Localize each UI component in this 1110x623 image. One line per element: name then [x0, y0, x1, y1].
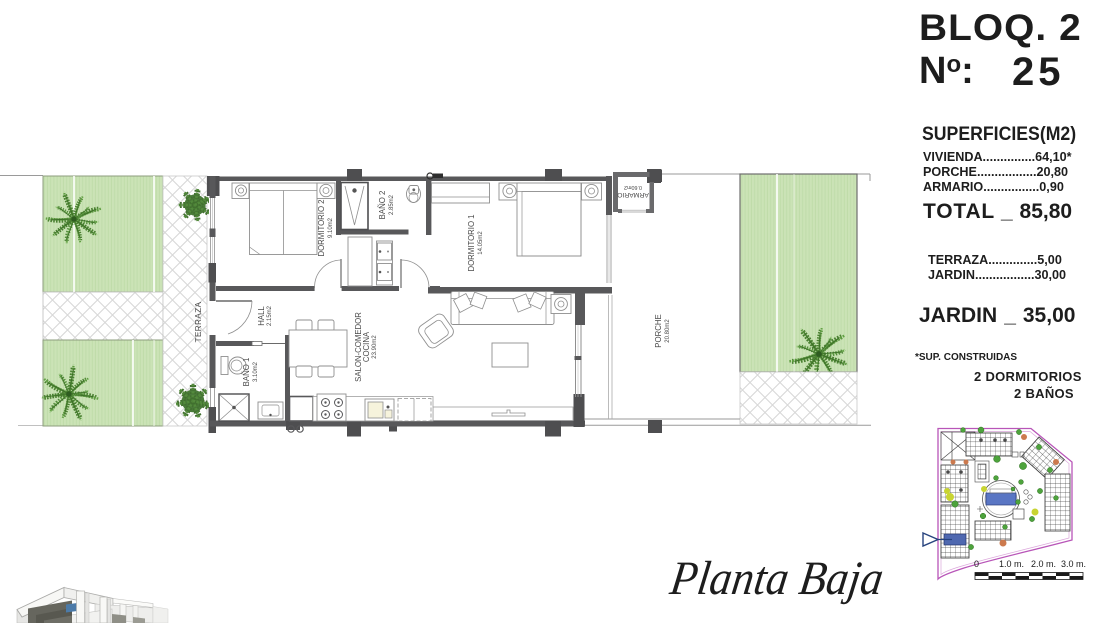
- svg-text:9.10m2: 9.10m2: [328, 217, 334, 238]
- svg-text:23.90m2: 23.90m2: [372, 335, 378, 359]
- svg-text:TERRAZA: TERRAZA: [194, 301, 203, 342]
- svg-text:HALL: HALL: [257, 306, 266, 326]
- svg-text:2.15m2: 2.15m2: [267, 305, 273, 326]
- svg-text:2.0 m.: 2.0 m.: [1031, 559, 1056, 569]
- svg-text:20.80m2: 20.80m2: [665, 319, 671, 343]
- svg-text:PORCHE: PORCHE: [654, 314, 663, 347]
- svg-text:1.0 m.: 1.0 m.: [999, 559, 1024, 569]
- svg-text:COCINA: COCINA: [362, 331, 371, 362]
- svg-text:ARMARIO: ARMARIO: [617, 191, 649, 198]
- svg-text:2.85m2: 2.85m2: [389, 194, 395, 215]
- svg-text:0: 0: [974, 559, 979, 569]
- svg-text:3.10m2: 3.10m2: [253, 361, 259, 382]
- svg-text:0.60m2: 0.60m2: [624, 184, 642, 190]
- svg-text:14.05m2: 14.05m2: [478, 231, 484, 255]
- svg-text:BAÑO 1: BAÑO 1: [242, 358, 251, 387]
- svg-text:BAÑO 2: BAÑO 2: [378, 191, 387, 220]
- svg-text:3.0 m.: 3.0 m.: [1061, 559, 1086, 569]
- svg-text:DORMITORIO 1: DORMITORIO 1: [467, 214, 476, 271]
- svg-text:DORMITORIO 2: DORMITORIO 2: [317, 199, 326, 256]
